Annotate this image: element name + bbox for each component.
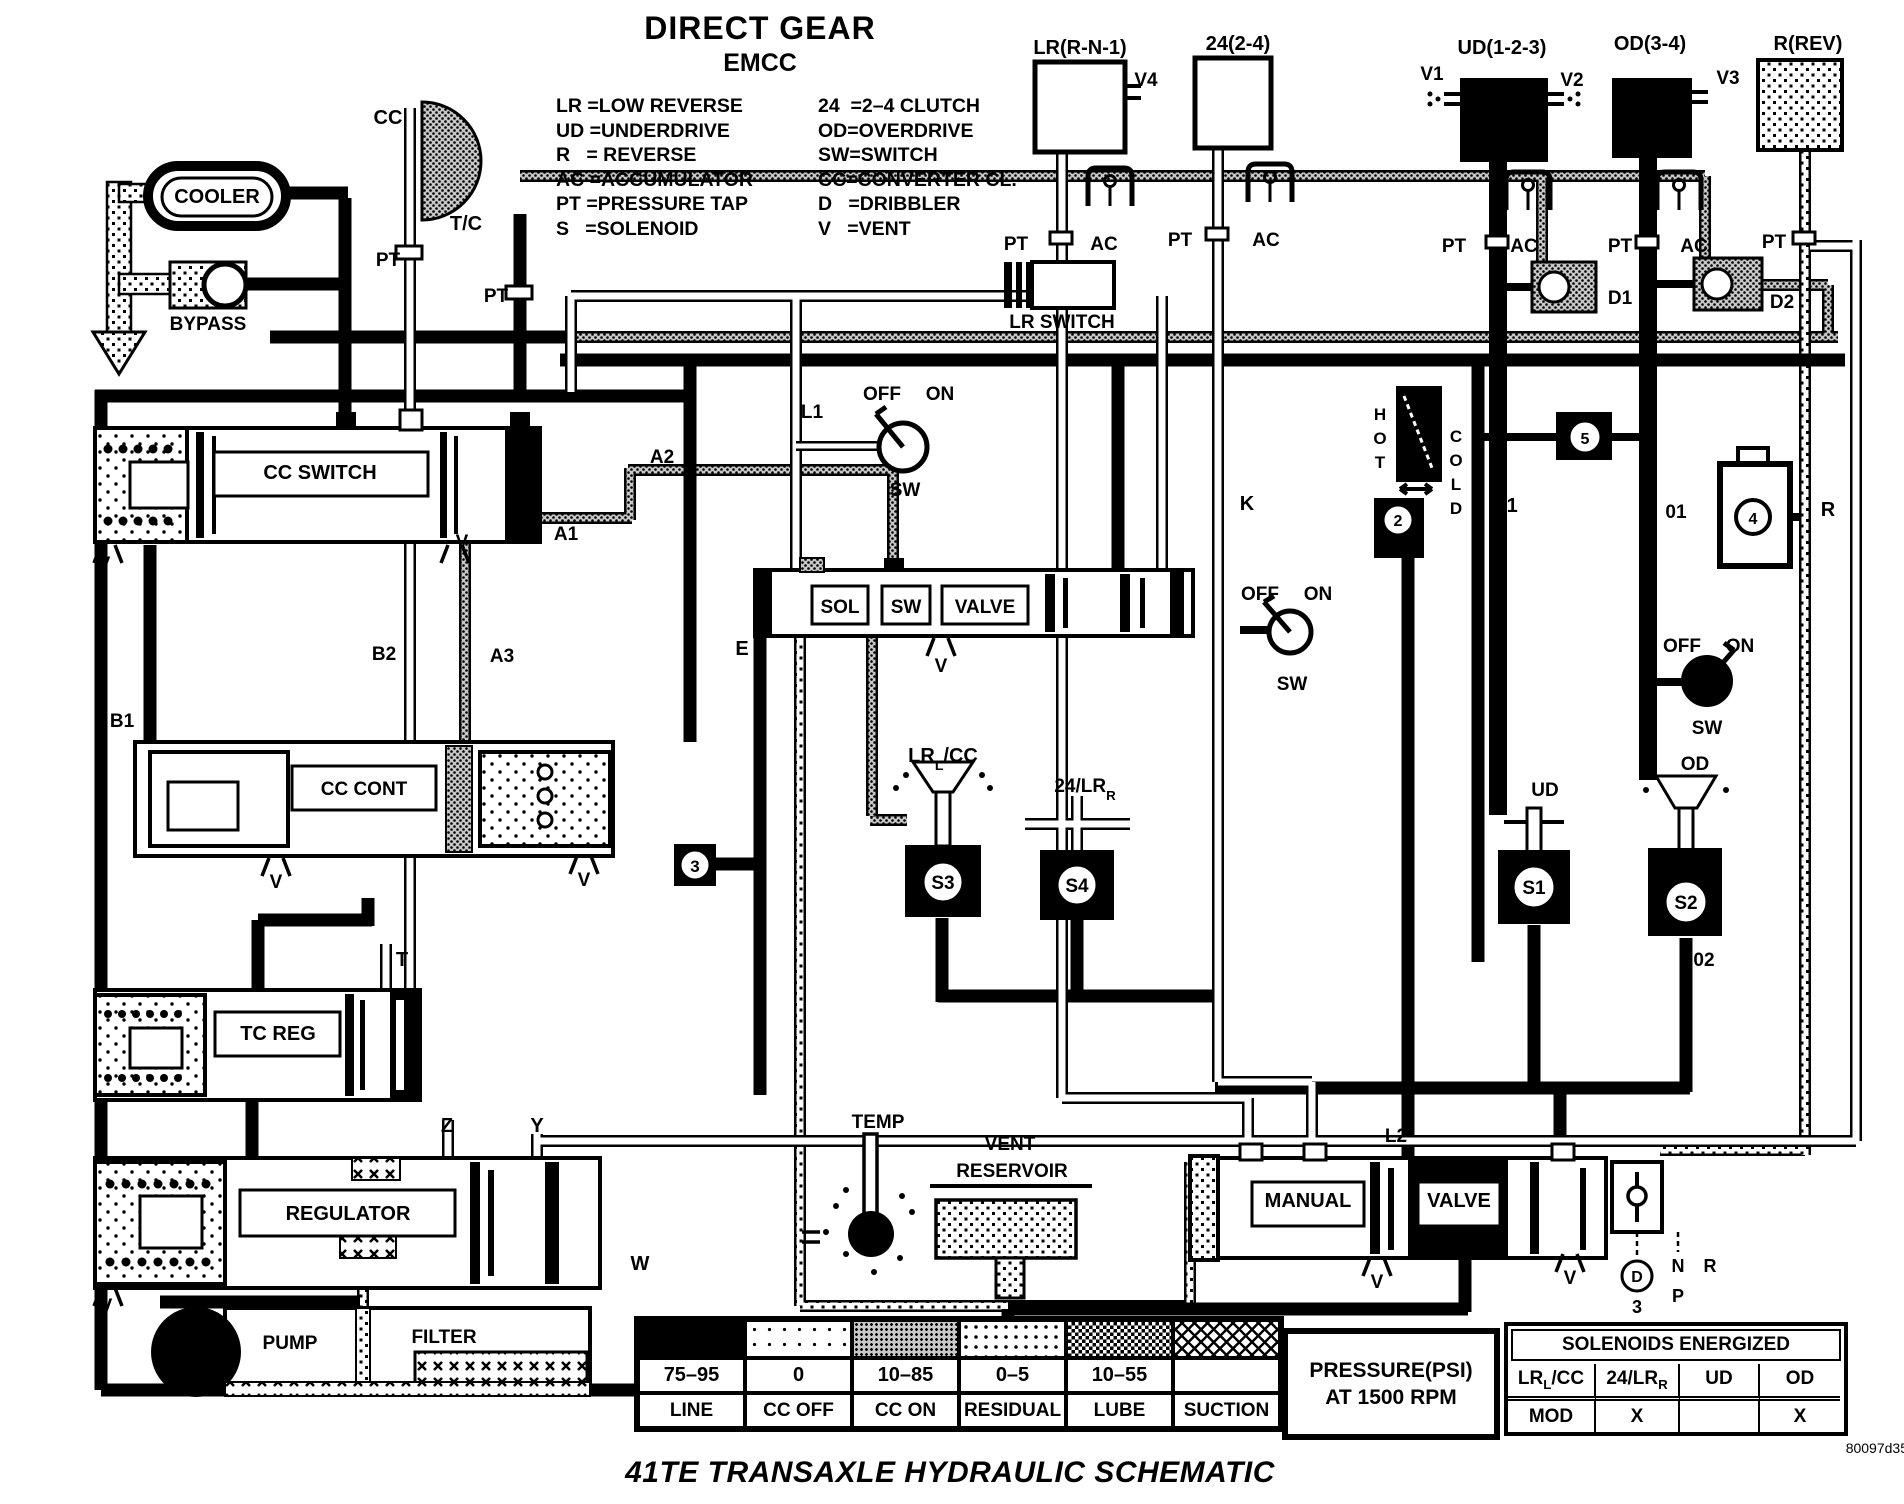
footer-title: 41TE TRANSAXLE HYDRAULIC SCHEMATIC — [400, 1456, 1500, 1490]
pattern-swatch-ccon — [852, 1320, 959, 1358]
dribbler-d2 — [1694, 258, 1762, 310]
dribbler-d1 — [1532, 262, 1596, 312]
label-pt-cc-line: PT — [376, 250, 401, 271]
pressure-val-1: 0 — [745, 1358, 852, 1393]
label-z: Z — [441, 1115, 453, 1137]
label-gear-n: N — [1672, 1256, 1685, 1276]
label-v-ccsw-left: V — [98, 554, 111, 575]
label-ac-24: AC — [1252, 230, 1280, 251]
label-v3: V3 — [1716, 68, 1739, 89]
label-v-manual-right: V — [1564, 1268, 1577, 1289]
suction-line — [225, 1382, 590, 1396]
label-l2: L2 — [1385, 1126, 1407, 1147]
label-w: W — [631, 1253, 650, 1275]
label-a1: A1 — [554, 524, 579, 545]
label-hot-t: T — [1375, 453, 1386, 472]
label-t: T — [396, 949, 408, 971]
label-sw1: SW — [890, 480, 921, 501]
label-tc-reg: TC REG — [240, 1023, 316, 1045]
pressure-legend-table: 75–95010–850–510–55LINECC OFFCC ONRESIDU… — [634, 1316, 1284, 1432]
tc-regulator-valve — [95, 990, 420, 1100]
label-pt-od: PT — [1608, 236, 1633, 257]
label-gear-d: D — [1631, 1269, 1643, 1286]
pressure-lbl-3: RESIDUAL — [959, 1393, 1066, 1428]
solenoid-col-header: UD — [1680, 1364, 1760, 1401]
label-valve-window: VALVE — [955, 597, 1016, 618]
label-gear-p: P — [1672, 1286, 1684, 1306]
pressure-val-0: 75–95 — [638, 1358, 745, 1393]
label-cold-c: C — [1450, 427, 1462, 446]
label-sw3: SW — [1692, 718, 1723, 739]
label-pt-24: PT — [1168, 230, 1193, 251]
solenoids-table-title: SOLENOIDS ENERGIZED — [1511, 1329, 1841, 1361]
lube-outflow-channel — [107, 182, 131, 332]
label-acc24-title: 24(2-4) — [1206, 33, 1270, 55]
label-ac-ud: AC — [1510, 236, 1538, 257]
label-vent: VENT — [985, 1134, 1036, 1155]
label-ac-od: AC — [1680, 236, 1708, 257]
pressure-note-line2: AT 1500 RPM — [1325, 1384, 1457, 1411]
accumulator-24 — [1195, 58, 1271, 148]
pressure-lbl-2: CC ON — [852, 1393, 959, 1428]
solenoid-col-header: 24/LRR — [1596, 1364, 1680, 1401]
label-s4: S4 — [1065, 876, 1089, 897]
label-d2: D2 — [1770, 292, 1794, 313]
label-b2: B2 — [372, 644, 396, 665]
label-r-acc-title: R(REV) — [1774, 33, 1843, 55]
manual-valve — [1190, 1144, 1606, 1260]
label-cc-cont: CC CONT — [321, 779, 408, 800]
torque-converter — [422, 102, 481, 220]
label-od-s2: OD — [1681, 754, 1710, 775]
label-sw2-off: OFF — [1241, 584, 1279, 605]
label-sw3-off: OFF — [1663, 636, 1701, 657]
label-v-ccsw-right: V — [456, 532, 469, 553]
legend-item: R = REVERSE — [556, 143, 753, 168]
label-regulator: REGULATOR — [286, 1203, 411, 1225]
label-l1: L1 — [801, 402, 824, 423]
label-sw3-on: ON — [1726, 636, 1755, 657]
label-c3: 3 — [690, 857, 699, 876]
label-bypass: BYPASS — [170, 314, 247, 335]
label-v-reg: V — [100, 1296, 113, 1317]
label-ac-lr: AC — [1090, 234, 1118, 255]
label-gear-r: R — [1704, 1256, 1717, 1276]
diagram-title: DIRECT GEAR EMCC — [530, 10, 990, 78]
lr-pressure-switch — [1004, 262, 1114, 308]
legend-item: CC=CONVERTER CL. — [818, 168, 1017, 193]
label-gear-3: 3 — [1632, 1297, 1642, 1317]
label-c4: 4 — [1749, 511, 1758, 528]
label-od-acc-title: OD(3-4) — [1614, 33, 1686, 55]
accumulator-r — [1758, 60, 1842, 150]
legend-item: PT =PRESSURE TAP — [556, 192, 753, 217]
label-reservoir: RESERVOIR — [956, 1161, 1068, 1182]
label-sol-window: SOL — [820, 597, 859, 618]
solenoids-energized-table: SOLENOIDS ENERGIZED LRL/CC24/LRRUDOD MOD… — [1504, 1322, 1848, 1436]
label-y: Y — [530, 1115, 544, 1137]
pressure-val-5 — [1173, 1358, 1280, 1393]
label-a2: A2 — [650, 447, 674, 468]
label-v1: V1 — [1420, 64, 1444, 85]
pattern-swatch-ccoff — [745, 1320, 852, 1358]
label-v-manual-left: V — [1371, 1272, 1384, 1293]
pressure-val-2: 10–85 — [852, 1358, 959, 1393]
solenoid-s1 — [1498, 808, 1570, 924]
label-ud-s1: UD — [1531, 780, 1558, 801]
pattern-swatch-suction — [1173, 1320, 1280, 1358]
label-v2: V2 — [1560, 70, 1583, 91]
label-sw1-off: OFF — [863, 384, 901, 405]
abbreviation-legend-col1: LR =LOW REVERSEUD =UNDERDRIVER = REVERSE… — [556, 94, 753, 241]
pressure-note-line1: PRESSURE(PSI) — [1309, 1357, 1472, 1384]
label-cc: CC — [374, 107, 403, 129]
solenoid-state-cell: X — [1596, 1401, 1680, 1432]
label-r-mid: R — [1821, 499, 1836, 521]
pressure-val-3: 0–5 — [959, 1358, 1066, 1393]
pattern-swatch-line — [638, 1320, 745, 1358]
abbreviation-legend-col2: 24 =2–4 CLUTCHOD=OVERDRIVESW=SWITCHCC=CO… — [818, 94, 1017, 241]
solenoid-state-cell: X — [1760, 1401, 1840, 1432]
hydraulic-schematic-page: CCT/CPTPTCOOLERBYPASSCC SWITCHVVA1A2A3B2… — [0, 0, 1904, 1504]
label-pump: PUMP — [263, 1333, 318, 1354]
vent-reservoir — [930, 1186, 1092, 1298]
label-c5: 5 — [1581, 431, 1590, 448]
label-pt-tc: PT — [484, 286, 509, 307]
legend-item: LR =LOW REVERSE — [556, 94, 753, 119]
label-a3: A3 — [490, 646, 514, 667]
label-s1: S1 — [1522, 878, 1546, 899]
legend-item: S =SOLENOID — [556, 217, 753, 242]
check-valve-4 — [1720, 448, 1790, 566]
pressure-lbl-5: SUCTION — [1173, 1393, 1280, 1428]
label-pt-r: PT — [1762, 232, 1787, 253]
label-v4: V4 — [1134, 70, 1158, 91]
solenoid-col-header: OD — [1760, 1364, 1840, 1401]
label-sw1-on: ON — [926, 384, 955, 405]
converter-clutch-on-lines — [435, 176, 1838, 820]
label-d1: D1 — [1608, 288, 1633, 309]
page-subtitle: EMCC — [530, 49, 990, 78]
label-o1: 01 — [1665, 502, 1687, 523]
label-valve2: VALVE — [1427, 1190, 1491, 1212]
accumulator-lr — [1035, 62, 1141, 152]
solenoid-col-header: LRL/CC — [1508, 1364, 1596, 1401]
pattern-swatch-lube — [1066, 1320, 1173, 1358]
page-title: DIRECT GEAR — [530, 10, 990, 47]
label-filter: FILTER — [411, 1327, 476, 1348]
label-k: K — [1240, 493, 1255, 515]
pressure-lbl-1: CC OFF — [745, 1393, 852, 1428]
pattern-swatch-residual — [959, 1320, 1066, 1358]
label-s3: S3 — [931, 873, 954, 894]
label-cold-l: L — [1451, 475, 1461, 494]
label-manual: MANUAL — [1265, 1190, 1352, 1212]
label-sw2-on: ON — [1304, 584, 1333, 605]
pressure-lbl-0: LINE — [638, 1393, 745, 1428]
label-pt-ud: PT — [1442, 236, 1467, 257]
label-sw2: SW — [1277, 674, 1308, 695]
solenoid-state-cell — [1680, 1401, 1760, 1432]
accumulator-ud — [1428, 78, 1581, 162]
label-v-solvalve: V — [935, 656, 948, 677]
label-cold-o: O — [1449, 451, 1462, 470]
label-lr-acc-title: LR(R-N-1) — [1033, 37, 1126, 59]
label-e: E — [735, 638, 748, 660]
label-b1: B1 — [110, 711, 135, 732]
label-hot-h: H — [1374, 405, 1386, 424]
label-ud-acc-title: UD(1-2-3) — [1458, 37, 1547, 59]
label-cc-switch: CC SWITCH — [263, 462, 376, 484]
label-o2: 02 — [1693, 950, 1714, 971]
label-u1: U1 — [1492, 495, 1518, 517]
legend-item: AC =ACCUMULATOR — [556, 168, 753, 193]
legend-item: V =VENT — [818, 217, 1017, 242]
label-s2: S2 — [1674, 893, 1697, 914]
pressure-val-4: 10–55 — [1066, 1358, 1173, 1393]
label-hot-o: O — [1373, 429, 1386, 448]
pump-and-filter — [151, 1307, 590, 1397]
label-tc-converter: T/C — [450, 213, 482, 235]
label-cold-d: D — [1450, 499, 1462, 518]
temp-sensor — [802, 1134, 915, 1275]
solenoid-state-cell: MOD — [1508, 1401, 1596, 1432]
label-c2: 2 — [1394, 513, 1403, 530]
label-temp: TEMP — [852, 1112, 905, 1133]
label-lr-switch: LR SWITCH — [1009, 312, 1115, 333]
label-v-cccont-right: V — [578, 870, 591, 891]
legend-item: 24 =2–4 CLUTCH — [818, 94, 1017, 119]
pressure-lbl-4: LUBE — [1066, 1393, 1173, 1428]
legend-item: OD=OVERDRIVE — [818, 119, 1017, 144]
pressure-taps-left — [396, 246, 532, 299]
drawing-code: 80097d35 — [1808, 1440, 1904, 1456]
bypass-valve — [170, 262, 246, 308]
gear-selector — [1612, 1162, 1678, 1291]
lube-arrow-icon — [93, 332, 145, 374]
label-cooler: COOLER — [174, 186, 260, 208]
label-v-cccont-left: V — [270, 872, 283, 893]
label-sw-window: SW — [891, 597, 922, 618]
switch-1 — [876, 407, 927, 471]
pressure-note-box: PRESSURE(PSI) AT 1500 RPM — [1282, 1328, 1500, 1440]
legend-item: D =DRIBBLER — [818, 192, 1017, 217]
legend-item: SW=SWITCH — [818, 143, 1017, 168]
accumulator-od — [1612, 78, 1708, 158]
legend-item: UD =UNDERDRIVE — [556, 119, 753, 144]
